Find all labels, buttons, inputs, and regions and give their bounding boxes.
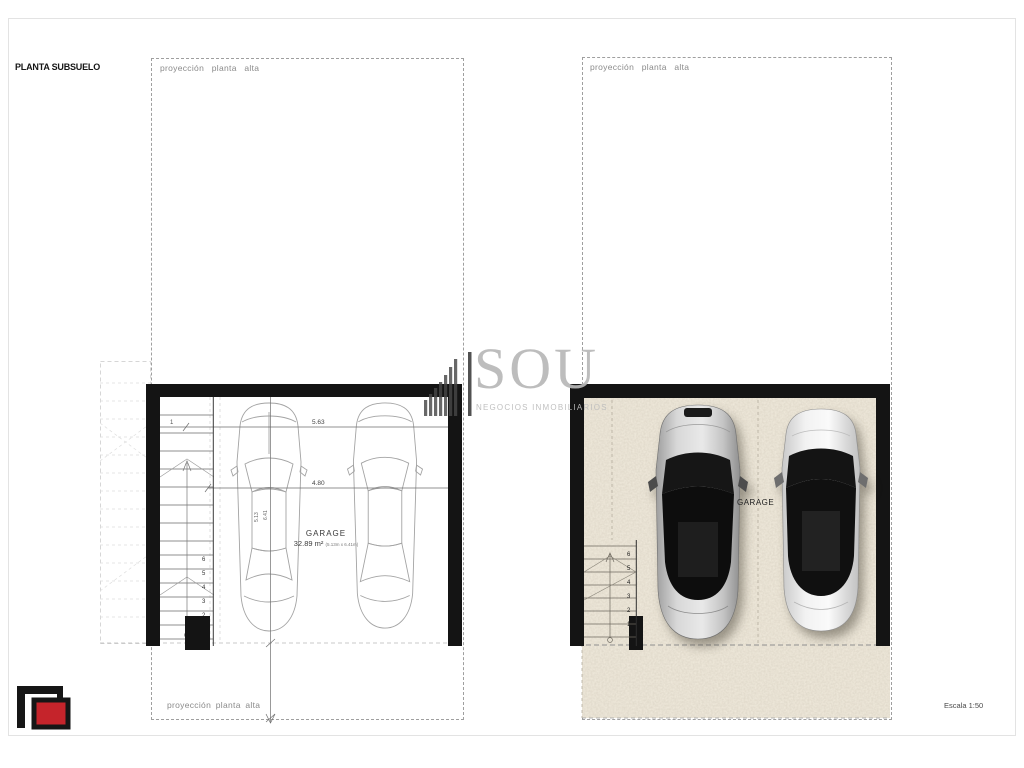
dim-width-top: 5.63 [312, 419, 325, 426]
scale-label: Escala 1:50 [944, 701, 983, 710]
right-garage-left-wall [570, 384, 584, 646]
right-stair-num-6: 6 [627, 552, 631, 558]
left-garage-caption: GARAGE 32.89 m² (5.13m x 6.41m) [288, 529, 364, 548]
right-car-white [772, 406, 870, 634]
plan-sheet: PLANTA SUBSUELO proyección planta alta p… [0, 0, 1024, 768]
right-stairs-drawing: 6 5 4 3 2 1 [584, 540, 637, 646]
company-logo-icon [17, 686, 71, 730]
left-garage-right-wall [448, 384, 462, 646]
left-projection-label-top: proyección planta alta [160, 63, 259, 73]
dim-width-inner: 4.80 [312, 480, 325, 487]
left-garage-area-detail: (5.13m x 6.41m) [325, 542, 358, 547]
right-stair-num-5: 5 [627, 566, 631, 572]
right-stair-num-3: 3 [627, 594, 631, 600]
right-projection-label-top: proyección planta alta [590, 62, 689, 72]
left-stair-num-5: 5 [202, 571, 206, 577]
right-garage-right-wall [876, 384, 890, 646]
right-car-silver [648, 402, 748, 642]
left-garage-top-wall [146, 384, 462, 397]
left-garage-area: 32.89 m² [294, 539, 324, 548]
left-stair-num-3: 3 [202, 599, 206, 605]
left-garage-left-wall [146, 384, 160, 646]
left-stairs-drawing: 6 5 4 3 2 1 [160, 397, 214, 646]
left-garage-label: GARAGE [288, 529, 364, 538]
left-stair-landing-wall [185, 616, 210, 650]
left-stair-num-4: 4 [202, 585, 206, 591]
right-garage-top-wall [570, 384, 890, 398]
dim-depth-b: 6.41 [263, 510, 269, 520]
right-stair-num-1: 1 [627, 622, 631, 628]
dim-depth-a: 5.13 [254, 512, 260, 522]
left-stair-num-6: 6 [202, 557, 206, 563]
page-title: PLANTA SUBSUELO [15, 62, 100, 72]
right-garage-label: GARAGE [737, 498, 774, 507]
